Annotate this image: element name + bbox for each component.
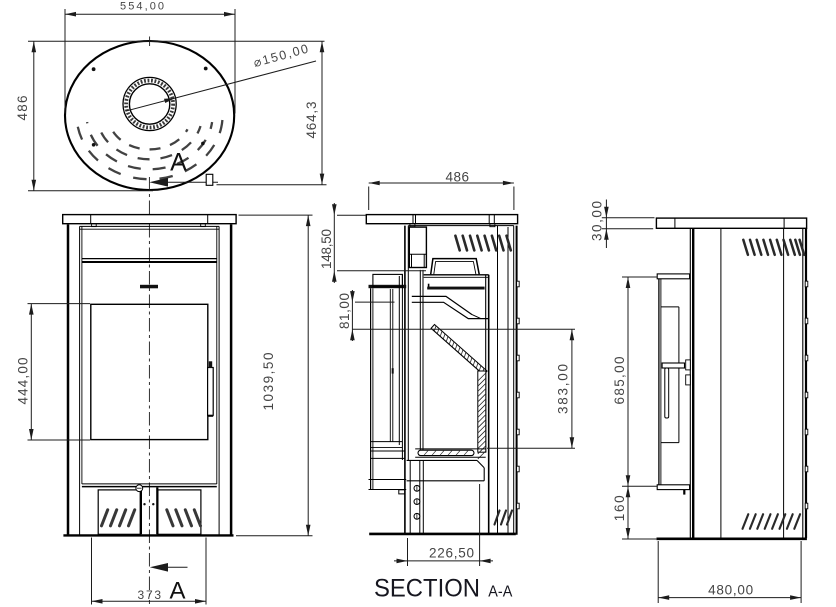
svg-text:444,00: 444,00 [16,358,31,405]
svg-text:81,00: 81,00 [337,293,352,329]
svg-text:A-A: A-A [488,584,512,601]
svg-text:383,00: 383,00 [555,364,570,414]
svg-text:148,50: 148,50 [319,229,334,269]
svg-text:226,50: 226,50 [429,546,474,561]
svg-text:30,00: 30,00 [589,201,604,241]
svg-text:A: A [169,578,185,605]
svg-text:160: 160 [612,495,627,521]
svg-text:SECTION: SECTION [374,575,480,603]
svg-text:373: 373 [138,588,162,602]
svg-text:A: A [170,149,187,177]
svg-text:480,00: 480,00 [708,583,753,598]
svg-text:486: 486 [15,96,30,121]
svg-text:464,3: 464,3 [304,102,319,139]
svg-text:486: 486 [446,170,470,185]
svg-text:685,00: 685,00 [612,357,627,405]
